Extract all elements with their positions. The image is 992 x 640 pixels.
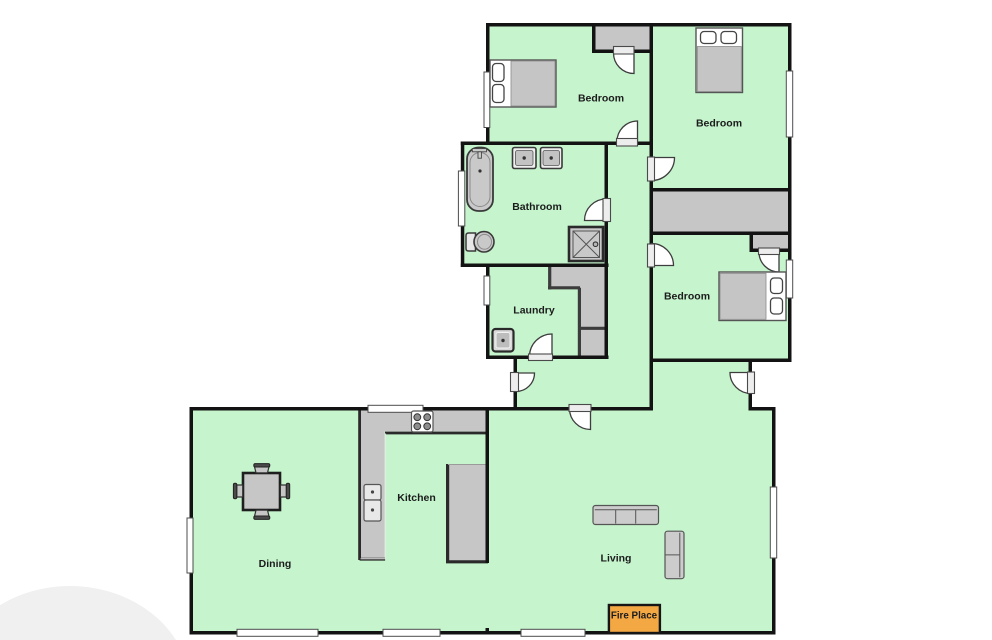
svg-text:Bedroom: Bedroom bbox=[696, 118, 742, 130]
svg-text:Dining: Dining bbox=[259, 558, 292, 570]
svg-text:Living: Living bbox=[601, 553, 632, 565]
svg-text:Bathroom: Bathroom bbox=[512, 201, 562, 213]
svg-text:Bedroom: Bedroom bbox=[578, 93, 624, 105]
svg-text:Kitchen: Kitchen bbox=[397, 492, 436, 504]
svg-text:Bedroom: Bedroom bbox=[664, 291, 710, 303]
svg-text:Fire Place: Fire Place bbox=[611, 611, 658, 622]
svg-text:Laundry: Laundry bbox=[513, 305, 555, 317]
